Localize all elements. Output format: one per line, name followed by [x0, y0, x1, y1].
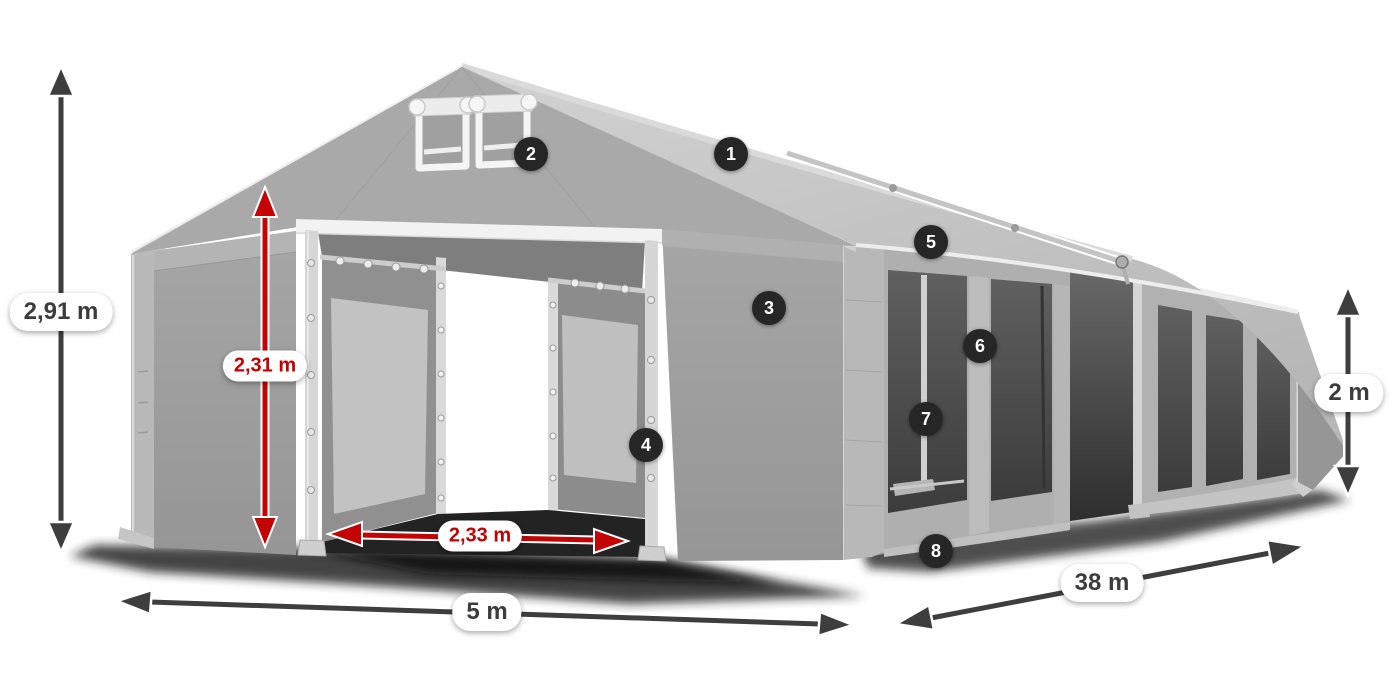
callout-7-side-opening: 7: [909, 402, 943, 436]
callout-2-roof-vent: 2: [514, 137, 548, 171]
tent-illustration: [0, 0, 1400, 700]
dimension-entrance-height: 2,31 m: [223, 351, 307, 382]
tent-dimension-diagram: 1 2 3 4 5 6 7 8 2,91 m 2,31 m 2,33 m 5 m…: [0, 0, 1400, 700]
entrance-interior: [318, 232, 645, 557]
entrance-left-pole: [298, 230, 326, 556]
callout-5-eave-valance: 5: [914, 225, 948, 259]
callout-6-side-panel-strip: 6: [963, 329, 997, 363]
dimension-side-height: 2 m: [1314, 374, 1383, 412]
dimension-entrance-width: 2,33 m: [438, 521, 522, 552]
callout-4-entrance-frame: 4: [629, 428, 663, 462]
front-right-wall: [662, 229, 843, 561]
dimension-tent-width: 5 m: [452, 593, 521, 631]
callout-1-roof-cover: 1: [714, 137, 748, 171]
dimension-total-height: 2,91 m: [10, 293, 113, 331]
dimension-tent-length: 38 m: [1061, 564, 1144, 602]
callout-3-front-wall: 3: [752, 291, 786, 325]
roof-vent-left: [409, 97, 476, 168]
callout-8-wall-skirt: 8: [919, 534, 953, 568]
